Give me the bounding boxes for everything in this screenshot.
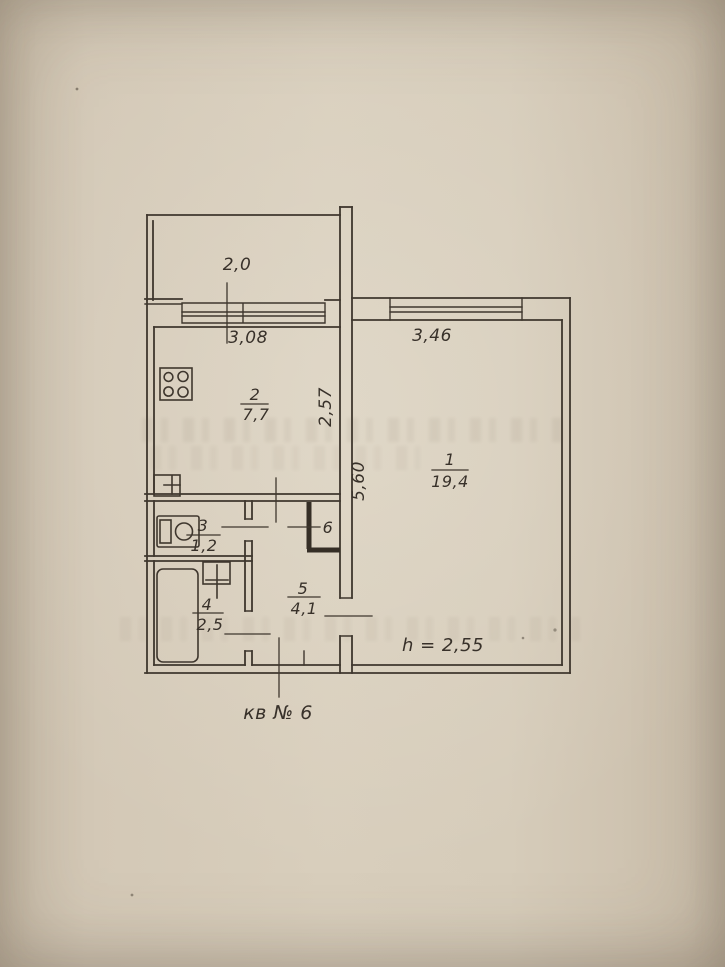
svg-text:1,2: 1,2 bbox=[191, 536, 218, 555]
dust-speck bbox=[522, 637, 525, 640]
svg-text:4: 4 bbox=[202, 595, 213, 614]
middle-bearing-wall bbox=[325, 207, 372, 673]
left-outer-wall bbox=[147, 300, 154, 673]
room-label-closet: 6 bbox=[323, 518, 334, 537]
living-width-label: 3,46 bbox=[412, 326, 452, 346]
room-label-living: 1 19,4 bbox=[431, 450, 469, 491]
room-label-hallway: 5 4,1 bbox=[288, 579, 320, 618]
scanned-floor-plan-photo: 2,0 3,08 3,46 2,57 5,60 1 19,4 2 7,7 3 1… bbox=[0, 0, 725, 967]
room-label-kitchen: 2 7,7 bbox=[241, 385, 270, 424]
svg-text:2,5: 2,5 bbox=[197, 615, 224, 634]
svg-text:4,1: 4,1 bbox=[291, 599, 318, 618]
dust-speck bbox=[553, 628, 556, 631]
kitchen-width-label: 3,08 bbox=[228, 328, 268, 348]
dust-speck bbox=[76, 88, 79, 91]
kitchen-depth-label: 2,57 bbox=[316, 387, 336, 427]
bottom-outer-wall bbox=[145, 638, 570, 697]
bathtub-icon bbox=[157, 569, 198, 662]
room-label-toilet: 3 1,2 bbox=[187, 516, 220, 555]
svg-text:2: 2 bbox=[250, 385, 261, 404]
kitchen-sink-icon bbox=[154, 475, 180, 496]
balcony-dimension-label: 2,0 bbox=[223, 255, 252, 275]
svg-text:3: 3 bbox=[198, 516, 209, 535]
svg-text:1: 1 bbox=[445, 450, 456, 469]
ceiling-height-label: h = 2,55 bbox=[402, 635, 484, 656]
washbasin-icon bbox=[203, 562, 230, 598]
svg-text:7,7: 7,7 bbox=[243, 405, 270, 424]
living-depth-label: 5,60 bbox=[349, 461, 369, 501]
stove-icon bbox=[160, 368, 192, 400]
floor-plan-drawing: 2,0 3,08 3,46 2,57 5,60 1 19,4 2 7,7 3 1… bbox=[0, 0, 725, 967]
svg-text:5: 5 bbox=[298, 579, 309, 598]
svg-text:19,4: 19,4 bbox=[431, 472, 469, 491]
apartment-number-label: кв № 6 bbox=[243, 702, 313, 724]
dust-speck bbox=[131, 894, 134, 897]
kitchen-walls bbox=[145, 327, 340, 522]
